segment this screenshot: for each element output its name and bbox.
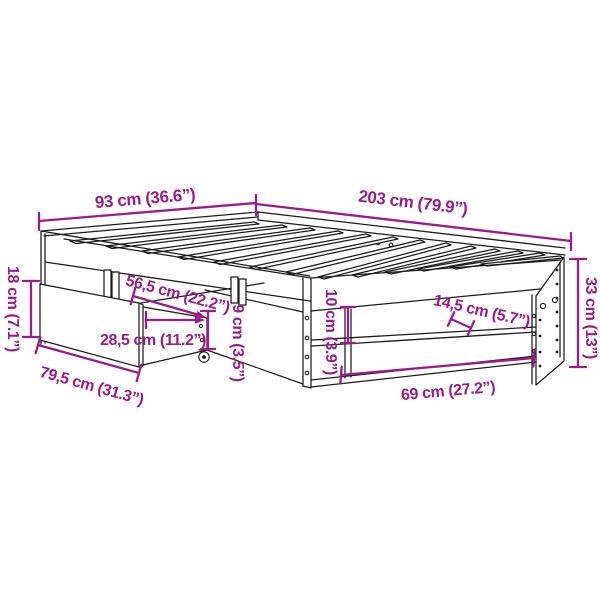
dim-under-rail-gap-label: 10 cm (3.9”) xyxy=(322,289,339,375)
dim-drawer-inner-depth-label: 28,5 cm (11.2”) xyxy=(100,332,206,349)
dim-bed-length-label: 203 cm (79.9”) xyxy=(357,187,468,219)
dim-drawer-front-height-label: 18 cm (7.1”) xyxy=(4,266,21,352)
dim-bed-width-label: 93 cm (36.6”) xyxy=(94,185,196,212)
dim-bed-length: 203 cm (79.9”) xyxy=(256,187,571,250)
dim-drawer-side-height-label: 9 cm (3.5”) xyxy=(229,304,246,381)
dim-under-rail-gap: 10 cm (3.9”) xyxy=(322,289,355,375)
dim-drawer-front-height: 18 cm (7.1”) xyxy=(4,266,39,352)
dim-side-opening-length-label: 69 cm (27.2”) xyxy=(400,379,496,404)
dim-drawer-side-height: 9 cm (3.5”) xyxy=(201,304,246,381)
dim-frame-side-height-label: 33 cm (13”) xyxy=(582,277,599,359)
dim-frame-side-height: 33 cm (13”) xyxy=(570,259,599,367)
diagram-canvas: 93 cm (36.6”) 203 cm (79.9”) 18 cm (7.1”… xyxy=(0,0,600,600)
dim-side-opening-length: 69 cm (27.2”) xyxy=(340,350,534,405)
dim-shelf-depth-label: 14,5 cm (5.7”) xyxy=(432,292,532,331)
bed-frame-dimension-diagram: 93 cm (36.6”) 203 cm (79.9”) 18 cm (7.1”… xyxy=(0,0,600,600)
dim-bed-width: 93 cm (36.6”) xyxy=(39,185,256,230)
foot-end-panel xyxy=(536,257,564,385)
